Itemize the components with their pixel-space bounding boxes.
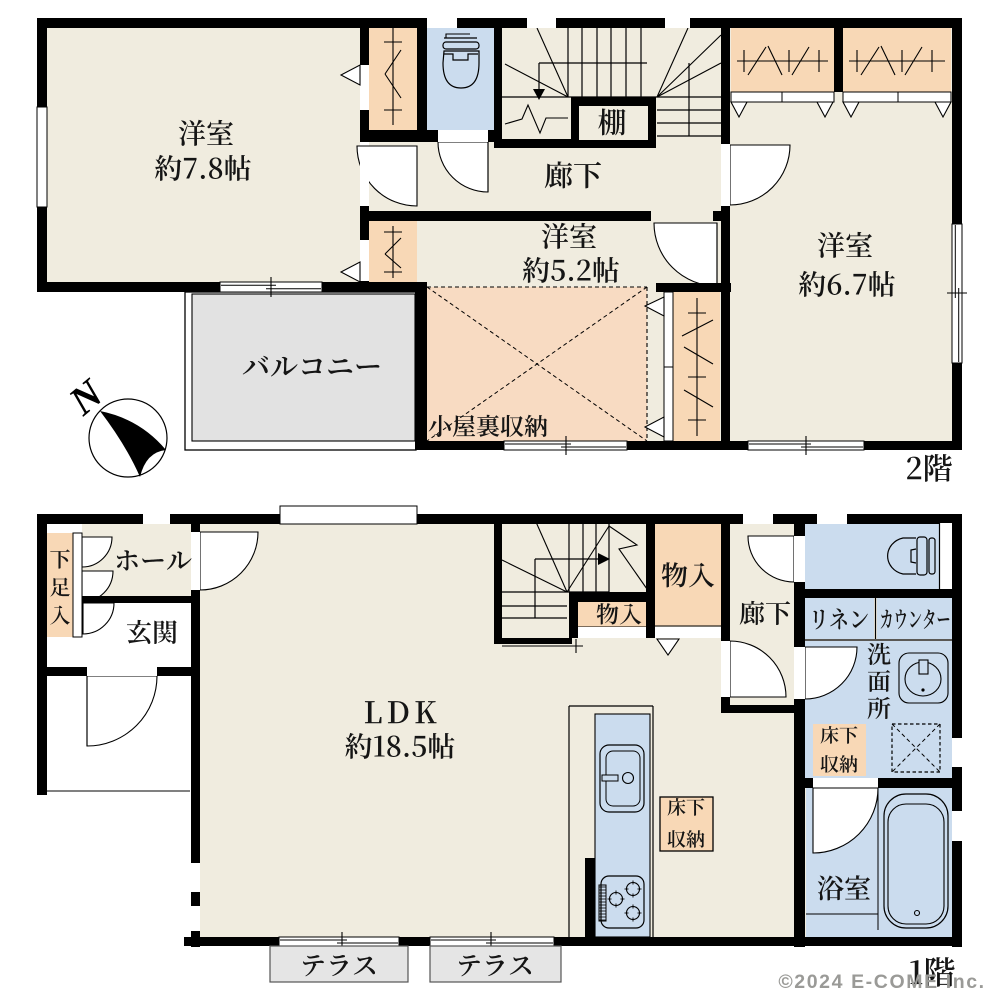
svg-text:©2024 E-COME Inc.: ©2024 E-COME Inc. bbox=[778, 971, 985, 993]
